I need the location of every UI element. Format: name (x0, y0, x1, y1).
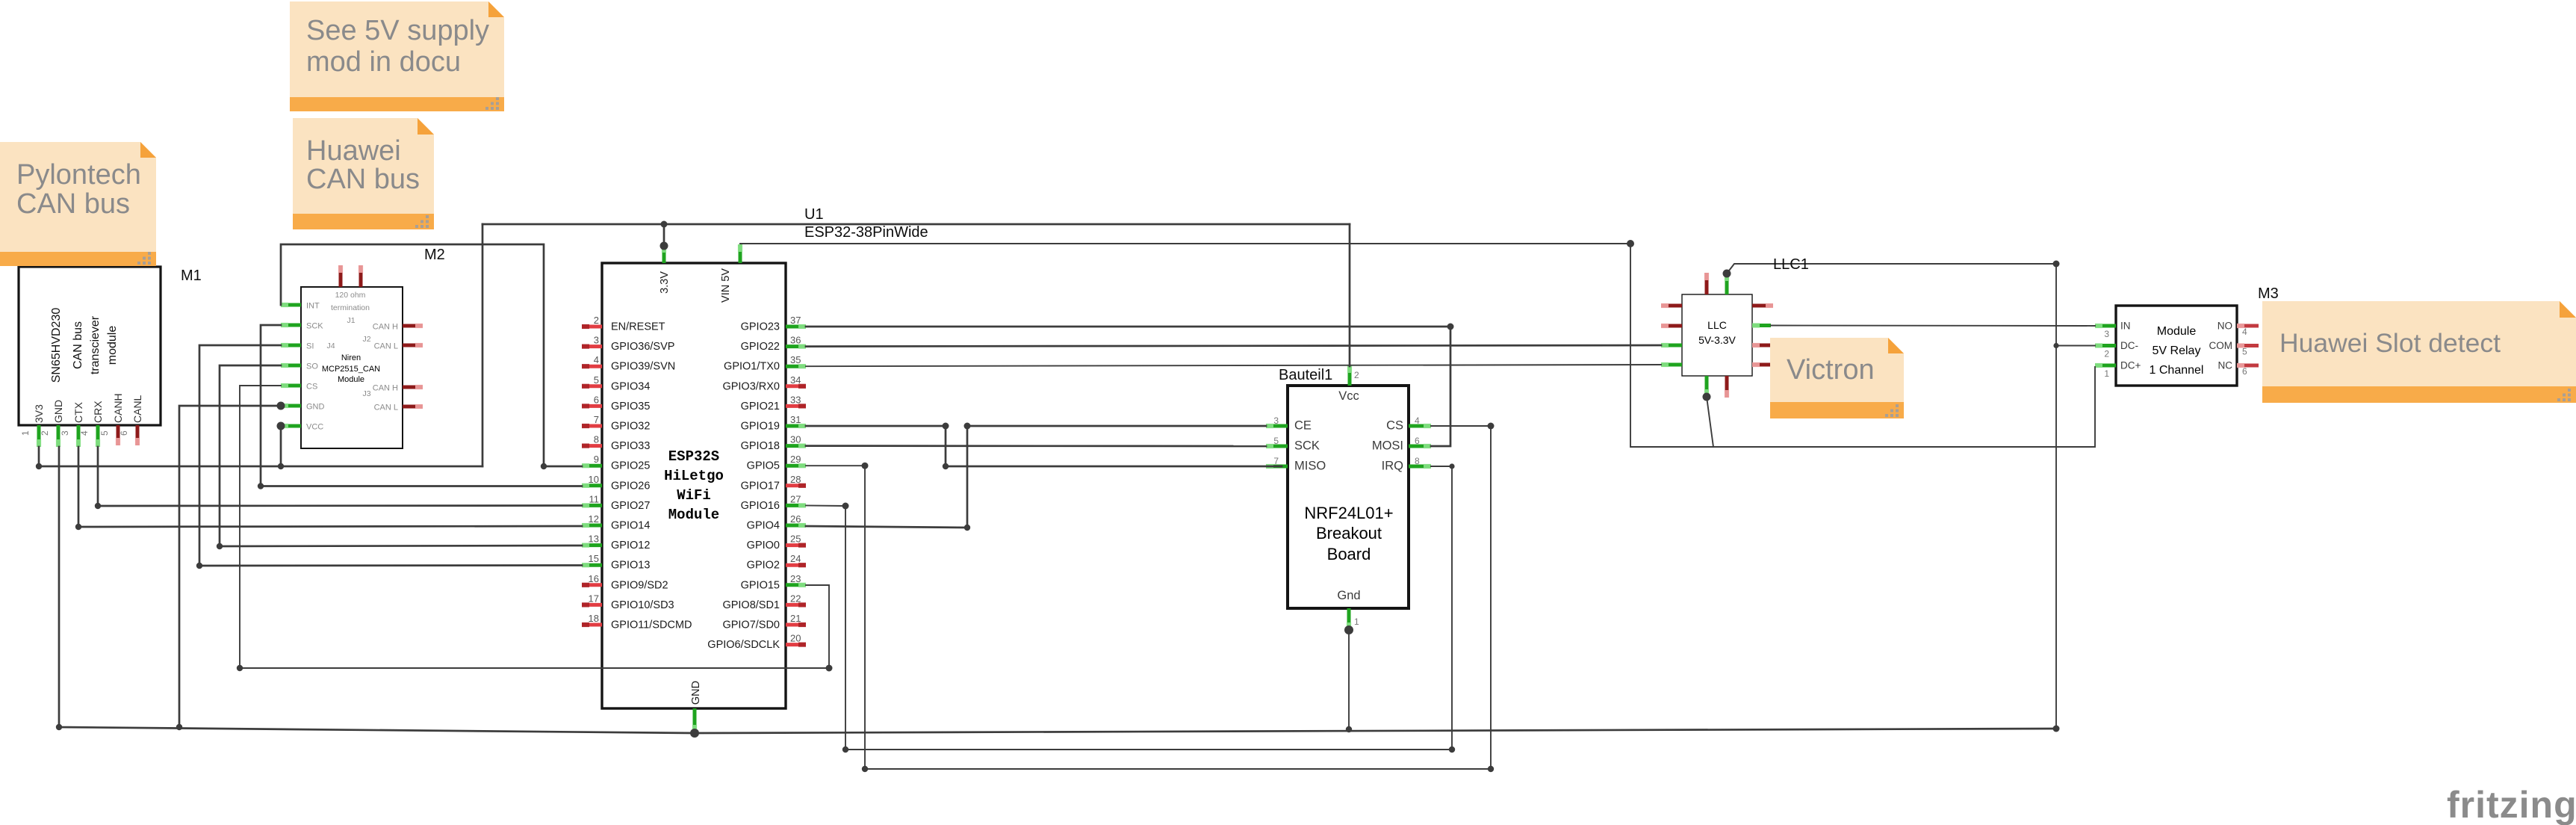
svg-text:22: 22 (790, 593, 801, 604)
svg-text:DC+: DC+ (2120, 360, 2141, 371)
svg-text:35: 35 (790, 354, 801, 365)
svg-text:GPIO39/SVN: GPIO39/SVN (611, 361, 675, 373)
svg-text:DC-: DC- (2120, 340, 2138, 351)
svg-text:GPIO18: GPIO18 (741, 440, 780, 452)
svg-text:37: 37 (790, 315, 801, 326)
svg-text:Huawei Slot detect: Huawei Slot detect (2279, 328, 2501, 358)
svg-text:INT: INT (306, 302, 320, 311)
svg-text:WiFi: WiFi (677, 487, 711, 504)
svg-text:J2: J2 (362, 335, 370, 344)
svg-text:4: 4 (79, 430, 90, 436)
svg-text:29: 29 (790, 454, 801, 465)
svg-text:Pylontech: Pylontech (16, 159, 141, 191)
svg-text:8: 8 (594, 434, 599, 445)
svg-text:Breakout: Breakout (1316, 524, 1382, 543)
svg-text:IN: IN (2120, 321, 2131, 332)
svg-text:GPIO15: GPIO15 (741, 579, 780, 591)
svg-text:GPIO6/SDCLK: GPIO6/SDCLK (707, 639, 780, 651)
svg-text:17: 17 (589, 593, 599, 604)
svg-text:Module: Module (2157, 325, 2197, 338)
svg-text:module: module (106, 326, 119, 365)
svg-text:See 5V supply: See 5V supply (306, 15, 489, 46)
svg-text:21: 21 (790, 613, 801, 624)
svg-text:CE: CE (1294, 419, 1312, 433)
svg-text:2: 2 (40, 430, 50, 436)
svg-text:13: 13 (589, 534, 599, 545)
svg-text:GPIO16: GPIO16 (741, 500, 780, 512)
svg-text:Bauteil1: Bauteil1 (1279, 367, 1332, 383)
svg-text:NRF24L01+: NRF24L01+ (1304, 504, 1393, 522)
svg-text:6: 6 (119, 430, 129, 436)
svg-text:CAN bus: CAN bus (16, 188, 130, 220)
svg-text:GPIO32: GPIO32 (611, 421, 650, 433)
svg-text:GND: GND (52, 400, 64, 423)
svg-text:GPIO12: GPIO12 (611, 540, 650, 551)
svg-text:5V Relay: 5V Relay (2153, 344, 2201, 357)
svg-text:GPIO36/SVP: GPIO36/SVP (611, 341, 674, 353)
svg-text:SCK: SCK (306, 322, 323, 331)
svg-text:CS: CS (306, 383, 317, 392)
svg-text:CAN bus: CAN bus (72, 321, 84, 369)
svg-text:GPIO23: GPIO23 (741, 321, 780, 333)
svg-text:GPIO4: GPIO4 (747, 520, 780, 532)
svg-text:31: 31 (790, 414, 801, 425)
svg-text:33: 33 (790, 394, 801, 405)
svg-text:23: 23 (790, 573, 801, 584)
svg-text:GPIO9/SD2: GPIO9/SD2 (611, 579, 668, 591)
svg-text:6: 6 (594, 394, 599, 405)
svg-text:GPIO33: GPIO33 (611, 440, 650, 452)
svg-text:CAN bus: CAN bus (306, 164, 420, 195)
svg-text:GPIO0: GPIO0 (747, 540, 780, 551)
svg-text:MCP2515_CAN: MCP2515_CAN (322, 365, 380, 374)
svg-text:GPIO25: GPIO25 (611, 460, 650, 472)
svg-text:1: 1 (1354, 617, 1359, 627)
svg-text:9: 9 (594, 454, 599, 465)
svg-text:GPIO17: GPIO17 (741, 480, 780, 492)
svg-text:mod in docu: mod in docu (306, 46, 461, 78)
svg-text:25: 25 (790, 534, 801, 545)
svg-text:GPIO11/SDCMD: GPIO11/SDCMD (611, 619, 692, 631)
svg-text:GND: GND (306, 403, 325, 412)
svg-text:CAN H: CAN H (373, 384, 398, 393)
svg-text:fritzing: fritzing (2447, 784, 2576, 825)
svg-text:20: 20 (790, 633, 801, 644)
svg-text:36: 36 (790, 335, 801, 346)
svg-text:18: 18 (589, 613, 599, 624)
svg-text:5V-3.3V: 5V-3.3V (1698, 334, 1736, 346)
svg-text:16: 16 (589, 573, 599, 584)
svg-text:CS: CS (1386, 419, 1403, 433)
svg-text:HiLetgo: HiLetgo (664, 468, 724, 484)
svg-text:EN/RESET: EN/RESET (611, 321, 665, 333)
svg-text:SCK: SCK (1294, 439, 1320, 453)
svg-text:27: 27 (790, 493, 801, 504)
svg-text:3: 3 (2104, 329, 2109, 339)
svg-text:Board: Board (1327, 545, 1371, 563)
svg-text:CAN H: CAN H (373, 323, 398, 332)
svg-text:GPIO5: GPIO5 (747, 460, 780, 472)
svg-text:15: 15 (589, 553, 599, 564)
svg-text:Gnd: Gnd (1337, 589, 1360, 602)
svg-text:VIN 5V: VIN 5V (720, 268, 732, 303)
svg-text:GPIO14: GPIO14 (611, 520, 650, 532)
svg-text:2: 2 (2104, 349, 2109, 359)
svg-text:Victron: Victron (1787, 354, 1875, 386)
svg-text:3.3V: 3.3V (659, 271, 671, 294)
svg-text:Module: Module (338, 375, 364, 384)
svg-text:26: 26 (790, 513, 801, 525)
svg-text:M2: M2 (424, 247, 445, 263)
svg-text:MOSI: MOSI (1372, 439, 1403, 453)
svg-text:7: 7 (594, 414, 599, 425)
svg-text:1: 1 (20, 430, 31, 436)
svg-text:GPIO2: GPIO2 (747, 560, 780, 572)
svg-text:Module: Module (668, 507, 719, 523)
svg-text:Niren: Niren (341, 353, 361, 362)
svg-text:GPIO21: GPIO21 (741, 401, 780, 412)
svg-text:J3: J3 (362, 389, 370, 398)
svg-text:GPIO35: GPIO35 (611, 401, 650, 412)
svg-text:GPIO22: GPIO22 (741, 341, 780, 353)
svg-text:NC: NC (2218, 360, 2233, 371)
svg-text:GPIO27: GPIO27 (611, 500, 650, 512)
svg-text:CRX: CRX (92, 401, 104, 423)
svg-text:MISO: MISO (1294, 460, 1326, 473)
svg-text:5: 5 (594, 374, 599, 386)
svg-text:SO: SO (306, 362, 318, 371)
svg-text:CAN L: CAN L (374, 404, 398, 412)
svg-text:GPIO7/SD0: GPIO7/SD0 (722, 619, 780, 631)
svg-text:GPIO26: GPIO26 (611, 480, 650, 492)
svg-text:5: 5 (99, 430, 110, 436)
svg-text:3V3: 3V3 (33, 404, 45, 423)
svg-text:VCC: VCC (306, 423, 323, 432)
svg-text:M1: M1 (181, 268, 202, 284)
svg-text:3: 3 (594, 335, 599, 346)
svg-text:28: 28 (790, 474, 801, 485)
svg-text:GPIO13: GPIO13 (611, 560, 650, 572)
svg-text:LLC: LLC (1707, 319, 1727, 331)
svg-text:GND: GND (690, 681, 702, 705)
svg-text:LLC1: LLC1 (1773, 256, 1809, 273)
svg-text:10: 10 (589, 474, 599, 485)
svg-text:U1: U1 (804, 206, 824, 223)
svg-text:GPIO19: GPIO19 (741, 421, 780, 433)
svg-text:COM: COM (2209, 340, 2233, 351)
svg-text:30: 30 (790, 434, 801, 445)
svg-text:24: 24 (790, 553, 801, 564)
svg-text:GPIO1/TX0: GPIO1/TX0 (724, 361, 780, 373)
svg-text:GPIO34: GPIO34 (611, 380, 650, 392)
svg-text:J1: J1 (347, 316, 355, 325)
svg-text:12: 12 (589, 513, 599, 525)
svg-text:CTX: CTX (72, 401, 84, 423)
svg-text:termination: termination (331, 303, 370, 312)
svg-text:NO: NO (2217, 321, 2232, 332)
svg-text:ESP32S: ESP32S (668, 448, 719, 465)
svg-text:ESP32-38PinWide: ESP32-38PinWide (804, 224, 928, 241)
svg-text:CAN L: CAN L (374, 342, 398, 351)
svg-text:120 ohm: 120 ohm (335, 291, 366, 300)
svg-text:J4: J4 (326, 342, 335, 350)
svg-text:2: 2 (1354, 370, 1359, 380)
svg-text:CANL: CANL (131, 395, 143, 423)
svg-text:3: 3 (60, 430, 70, 436)
svg-text:SI: SI (306, 342, 314, 351)
svg-text:11: 11 (589, 493, 600, 504)
svg-text:CANH: CANH (112, 393, 124, 423)
svg-text:1 Channel: 1 Channel (2150, 364, 2204, 377)
svg-text:2: 2 (594, 315, 599, 326)
svg-text:M3: M3 (2258, 285, 2279, 302)
svg-text:Huawei: Huawei (306, 135, 401, 167)
svg-text:1: 1 (2104, 368, 2109, 379)
svg-text:4: 4 (594, 354, 599, 365)
svg-text:SN65HVD230: SN65HVD230 (50, 308, 63, 383)
svg-text:34: 34 (790, 374, 801, 386)
svg-text:GPIO8/SD1: GPIO8/SD1 (722, 599, 780, 611)
svg-text:GPIO10/SD3: GPIO10/SD3 (611, 599, 674, 611)
svg-text:GPIO3/RX0: GPIO3/RX0 (722, 380, 780, 392)
svg-text:IRQ: IRQ (1382, 460, 1404, 473)
svg-text:transciever: transciever (89, 315, 102, 374)
svg-text:Vcc: Vcc (1338, 389, 1359, 403)
